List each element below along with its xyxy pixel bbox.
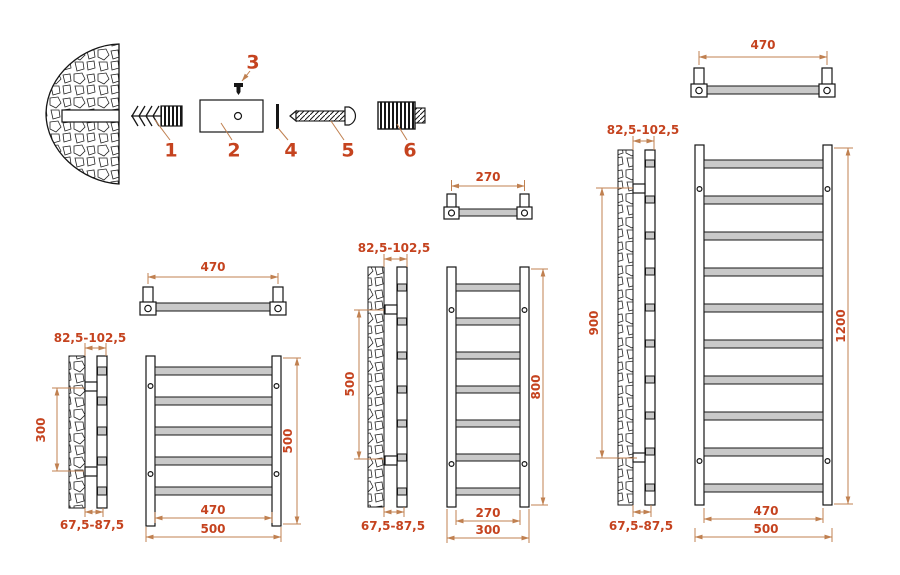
- part-number-4: 4: [284, 142, 297, 161]
- tube: [447, 267, 456, 507]
- drawing-linework: [0, 0, 900, 575]
- wall: [368, 267, 384, 507]
- part-bracket-plate: [200, 100, 263, 132]
- drill-hole: [62, 110, 119, 122]
- tube: [146, 356, 155, 526]
- mount-hole: [697, 187, 702, 192]
- dim-overall-width-800: 300: [475, 524, 500, 536]
- tube: [823, 145, 832, 505]
- mount-hole: [449, 462, 454, 467]
- tube: [520, 267, 529, 507]
- dim-wall-offset-top-500: 82,5-102,5: [54, 332, 127, 344]
- part-number-5: 5: [341, 142, 354, 161]
- mount-hole: [522, 462, 527, 467]
- dim-topview-width-500: 470: [200, 261, 225, 273]
- bracket: [385, 456, 397, 465]
- part-set-screw: [234, 83, 243, 95]
- mount-hole: [274, 472, 279, 477]
- mount-hole: [697, 459, 702, 464]
- dim-height-500: 500: [282, 428, 294, 453]
- dim-wall-offset-bot-800: 67,5-87,5: [361, 520, 425, 532]
- bracket: [85, 382, 97, 391]
- dim-bracket-span-1200: 900: [588, 310, 600, 335]
- dim-wall-offset-bot-1200: 67,5-87,5: [609, 520, 673, 532]
- part-number-3: 3: [246, 54, 259, 73]
- top-view-1200: [691, 51, 835, 97]
- side-view-800: [354, 254, 407, 517]
- technical-drawing-towel-radiators: 1 2 3 4 5 6 470 82,5-102,5 300 500 470 5…: [0, 0, 900, 575]
- mount-hole: [148, 384, 153, 389]
- tube: [272, 356, 281, 526]
- tube: [695, 145, 704, 505]
- dim-rail-width-800: 270: [475, 507, 500, 519]
- mount-hole: [522, 308, 527, 313]
- mount-hole: [449, 308, 454, 313]
- dim-rail-width-500: 470: [200, 504, 225, 516]
- part-washer: [276, 104, 279, 129]
- leader-4: [278, 128, 288, 140]
- dim-wall-offset-top-800: 82,5-102,5: [358, 242, 431, 254]
- dim-wall-offset-bot-500: 67,5-87,5: [60, 519, 124, 531]
- dim-height-800: 800: [530, 374, 542, 399]
- part-holder: [378, 102, 425, 129]
- mount-hole: [825, 187, 830, 192]
- side-view-500: [52, 343, 107, 517]
- mount-hole: [274, 384, 279, 389]
- front-view-1200: [695, 145, 853, 542]
- wall: [69, 356, 85, 508]
- dim-overall-width-500: 500: [200, 523, 225, 535]
- part-wall-plug: [131, 106, 182, 126]
- part-number-2: 2: [227, 142, 240, 161]
- front-view-800: [447, 267, 548, 543]
- part-number-6: 6: [403, 142, 416, 161]
- dim-bracket-span-800: 500: [344, 371, 356, 396]
- part-screw: [290, 107, 355, 125]
- mount-hole: [825, 459, 830, 464]
- mounting-kit-diagram: [46, 44, 425, 184]
- dim-wall-offset-top-1200: 82,5-102,5: [607, 124, 680, 136]
- plate-hole: [235, 113, 242, 120]
- dim-overall-width-1200: 500: [753, 523, 778, 535]
- bracket: [385, 305, 397, 314]
- dim-bracket-span-500: 300: [35, 417, 47, 442]
- dim-topview-width-800: 270: [475, 171, 500, 183]
- bracket: [85, 467, 97, 476]
- part-number-1: 1: [164, 142, 177, 161]
- top-view-800: [444, 180, 532, 219]
- side-view-1200: [596, 136, 655, 517]
- dim-height-1200: 1200: [835, 309, 847, 342]
- bracket: [633, 184, 645, 193]
- mount-hole: [148, 472, 153, 477]
- top-view-500: [140, 273, 286, 315]
- dim-topview-width-1200: 470: [750, 39, 775, 51]
- wall: [618, 150, 633, 505]
- leader-5: [331, 121, 344, 140]
- dim-rail-width-1200: 470: [753, 505, 778, 517]
